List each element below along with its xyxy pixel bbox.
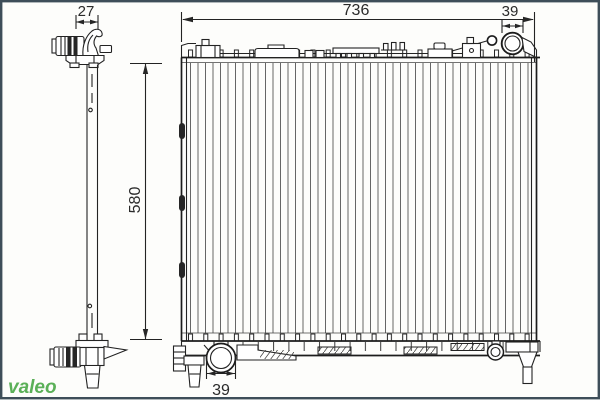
bottom-bracket-1	[318, 347, 351, 354]
front-view	[174, 33, 541, 387]
bottom-bracket-2	[404, 347, 437, 354]
valeo-logo: valeo	[8, 377, 57, 398]
dim-39-top-label: 39	[502, 3, 519, 20]
dim-580-label: 580	[127, 187, 144, 214]
tank-plateau	[255, 49, 299, 58]
core-fins	[187, 63, 531, 333]
drawing-canvas: 27 580	[0, 0, 600, 400]
radiator-core	[179, 50, 537, 342]
dim-736-label: 736	[343, 2, 370, 19]
radiator-drawing: 27 580	[0, 0, 600, 400]
inlet-small-port	[487, 36, 496, 45]
dim-39-bottom-label: 39	[212, 382, 230, 399]
bottom-bracket-3	[451, 344, 484, 351]
inlet-pipe	[502, 33, 524, 55]
tank-pegs-small	[381, 43, 407, 51]
dim-27-label: 27	[78, 3, 95, 20]
